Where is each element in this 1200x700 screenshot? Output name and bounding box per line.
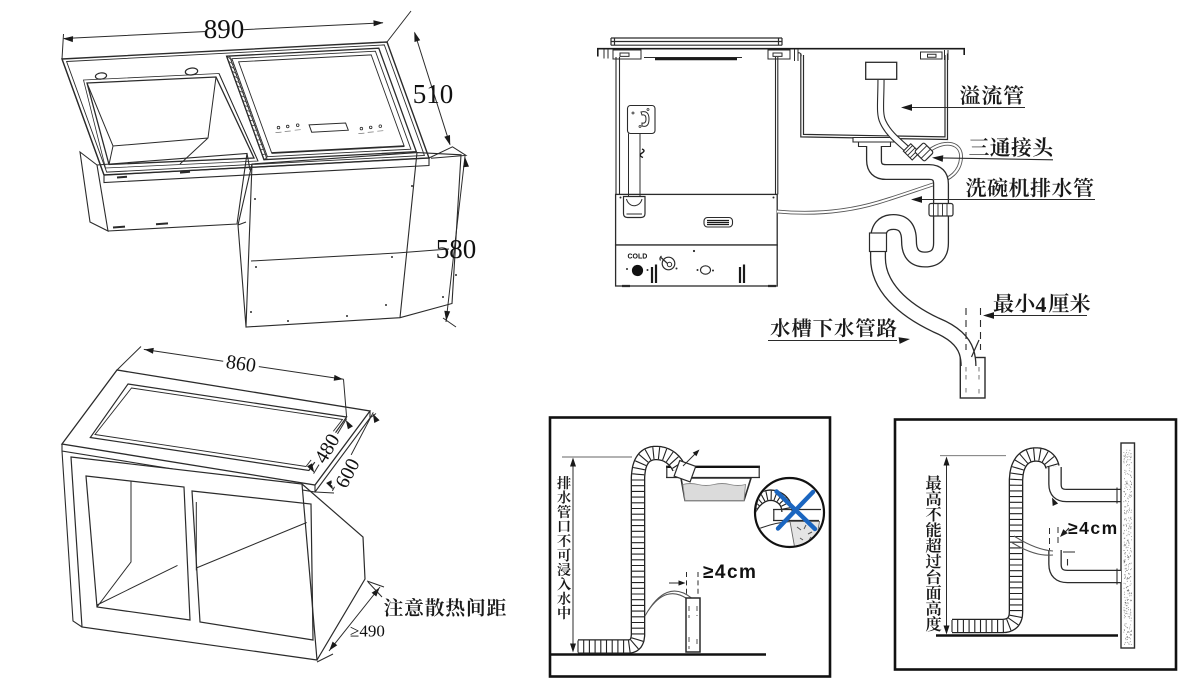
- svg-text:4: 4: [1035, 292, 1046, 317]
- svg-text:510: 510: [413, 79, 454, 109]
- svg-text:890: 890: [204, 14, 245, 44]
- svg-text:580: 580: [436, 234, 477, 264]
- svg-text:860: 860: [225, 351, 258, 377]
- svg-text:COLD: COLD: [628, 254, 648, 261]
- svg-text:≥4cm: ≥4cm: [1068, 518, 1119, 538]
- svg-text:≥4cm: ≥4cm: [703, 562, 757, 583]
- svg-text:≥490: ≥490: [350, 622, 385, 641]
